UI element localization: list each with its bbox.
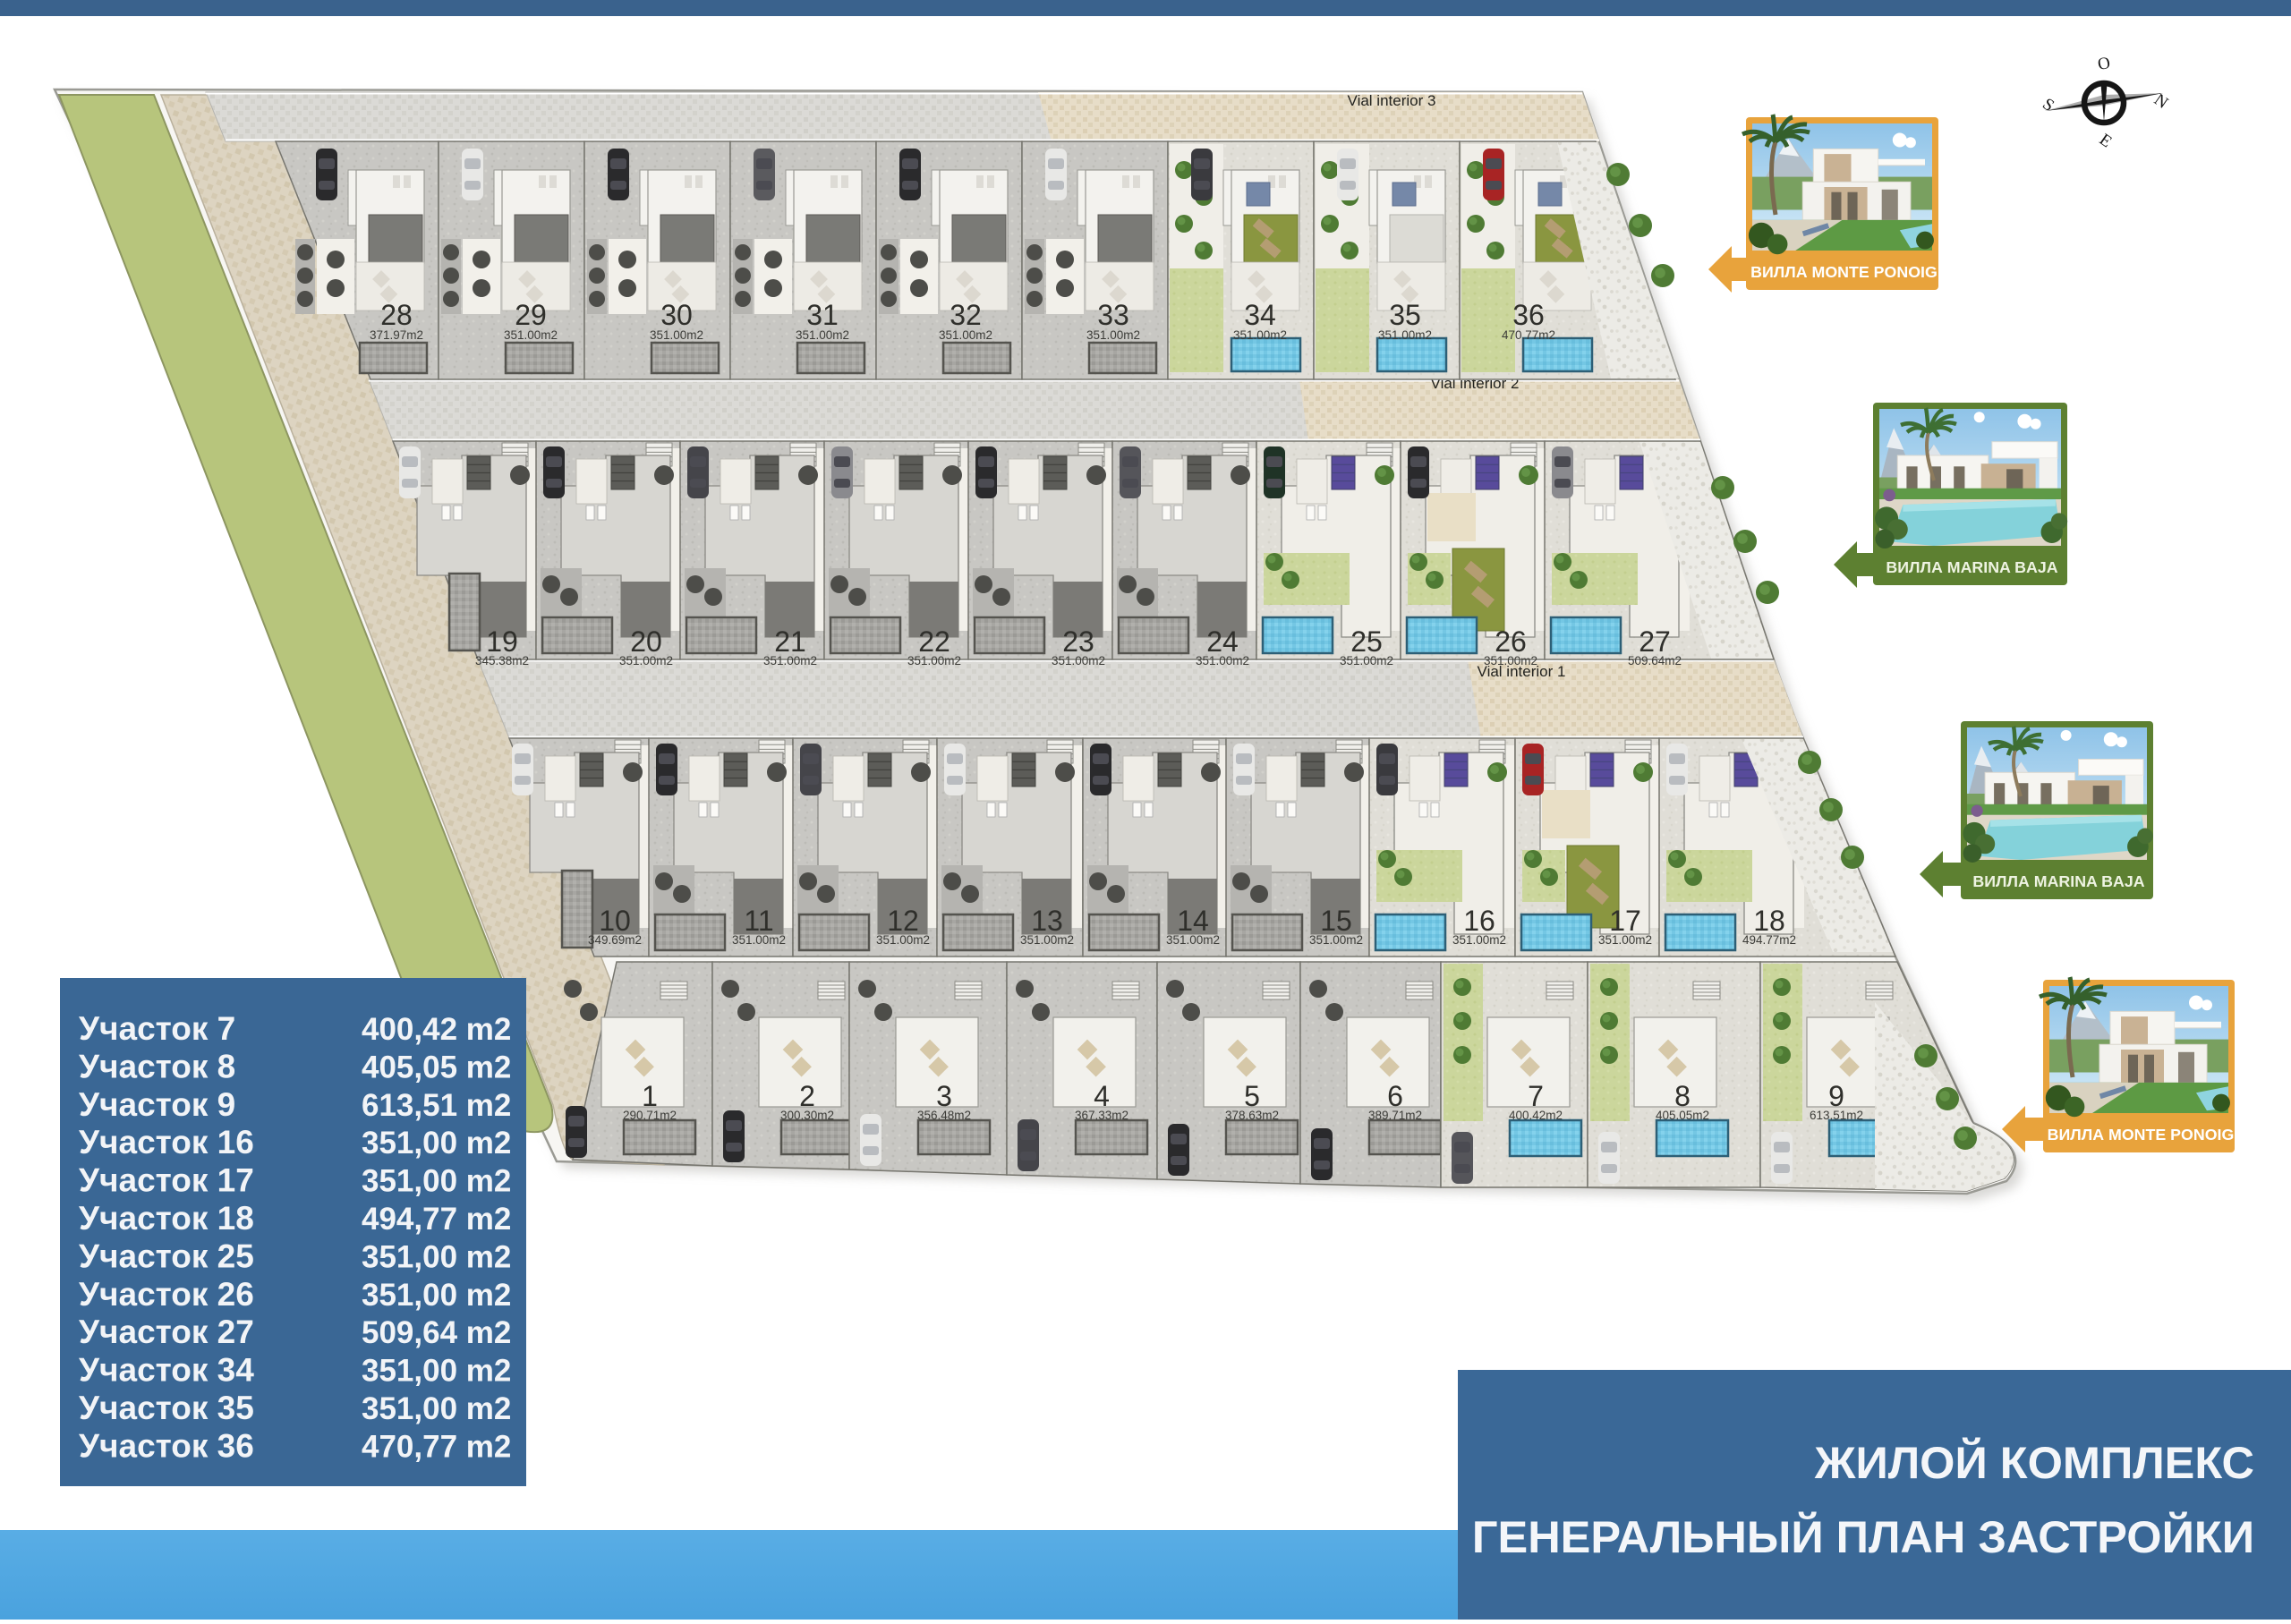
svg-text:3: 3	[936, 1080, 952, 1112]
svg-text:8: 8	[1674, 1080, 1691, 1112]
svg-text:12: 12	[887, 905, 919, 937]
svg-text:13: 13	[1031, 905, 1063, 937]
svg-text:613.51m2: 613.51m2	[1810, 1109, 1863, 1122]
svg-text:400,42 m2: 400,42 m2	[362, 1012, 511, 1047]
svg-text:509.64m2: 509.64m2	[1628, 654, 1682, 667]
svg-text:35: 35	[1389, 299, 1421, 331]
svg-text:24: 24	[1206, 625, 1239, 658]
svg-text:351.00m2: 351.00m2	[1378, 328, 1432, 342]
svg-text:ВИЛЛА MONTE PONOIG: ВИЛЛА MONTE PONOIG	[2048, 1126, 2235, 1144]
svg-text:10: 10	[599, 905, 631, 937]
svg-text:345.38m2: 345.38m2	[475, 654, 529, 667]
svg-text:470.77m2: 470.77m2	[1502, 328, 1555, 342]
svg-text:351.00m2: 351.00m2	[763, 654, 817, 667]
svg-text:20: 20	[630, 625, 662, 658]
svg-text:351.00m2: 351.00m2	[796, 328, 849, 342]
svg-text:ВИЛЛА MONTE PONOIG: ВИЛЛА MONTE PONOIG	[1750, 263, 1938, 281]
svg-text:290.71m2: 290.71m2	[623, 1109, 677, 1122]
svg-text:15: 15	[1320, 905, 1352, 937]
svg-text:19: 19	[486, 625, 518, 658]
svg-text:5: 5	[1244, 1080, 1260, 1112]
svg-text:351.00m2: 351.00m2	[1196, 654, 1249, 667]
svg-text:Участок 18: Участок 18	[79, 1200, 254, 1237]
svg-text:Участок 8: Участок 8	[79, 1048, 235, 1084]
svg-text:18: 18	[1753, 905, 1785, 937]
svg-text:351.00m2: 351.00m2	[907, 654, 961, 667]
svg-text:351.00m2: 351.00m2	[1340, 654, 1393, 667]
svg-text:470,77 m2: 470,77 m2	[362, 1429, 511, 1464]
svg-text:22: 22	[918, 625, 950, 658]
svg-text:405.05m2: 405.05m2	[1656, 1109, 1709, 1122]
svg-text:371.97m2: 371.97m2	[370, 328, 423, 342]
svg-text:1: 1	[642, 1080, 658, 1112]
svg-text:16: 16	[1463, 905, 1495, 937]
svg-text:Vial interior 3: Vial interior 3	[1348, 92, 1436, 109]
svg-text:613,51 m2: 613,51 m2	[362, 1088, 511, 1123]
svg-text:Участок 36: Участок 36	[79, 1427, 254, 1464]
svg-text:351.00m2: 351.00m2	[1020, 933, 1074, 947]
svg-text:351.00m2: 351.00m2	[650, 328, 703, 342]
svg-text:351,00 m2: 351,00 m2	[362, 1164, 511, 1199]
svg-text:351.00m2: 351.00m2	[1484, 654, 1537, 667]
svg-text:23: 23	[1062, 625, 1094, 658]
svg-text:Участок 35: Участок 35	[79, 1390, 254, 1426]
svg-text:400.42m2: 400.42m2	[1509, 1109, 1563, 1122]
svg-text:389.71m2: 389.71m2	[1368, 1109, 1422, 1122]
svg-text:494.77m2: 494.77m2	[1742, 933, 1796, 947]
svg-text:31: 31	[806, 299, 839, 331]
svg-text:Участок 9: Участок 9	[79, 1086, 235, 1123]
svg-text:351.00m2: 351.00m2	[939, 328, 992, 342]
svg-text:351,00 m2: 351,00 m2	[362, 1239, 511, 1274]
svg-text:Участок 26: Участок 26	[79, 1276, 254, 1313]
svg-text:21: 21	[774, 625, 806, 658]
svg-text:351.00m2: 351.00m2	[1052, 654, 1105, 667]
svg-text:356.48m2: 356.48m2	[917, 1109, 971, 1122]
svg-text:351.00m2: 351.00m2	[876, 933, 930, 947]
svg-text:30: 30	[660, 299, 693, 331]
svg-text:14: 14	[1177, 905, 1209, 937]
svg-text:351.00m2: 351.00m2	[1309, 933, 1363, 947]
svg-text:351,00 m2: 351,00 m2	[362, 1126, 511, 1161]
svg-text:2: 2	[799, 1080, 815, 1112]
svg-text:351.00m2: 351.00m2	[1598, 933, 1652, 947]
svg-text:351,00 m2: 351,00 m2	[362, 1278, 511, 1313]
svg-text:349.69m2: 349.69m2	[588, 933, 642, 947]
svg-text:25: 25	[1350, 625, 1383, 658]
svg-text:9: 9	[1828, 1080, 1844, 1112]
svg-text:351.00m2: 351.00m2	[1233, 328, 1287, 342]
svg-text:ЖИЛОЙ КОМПЛЕКС: ЖИЛОЙ КОМПЛЕКС	[1814, 1437, 2254, 1488]
svg-text:33: 33	[1097, 299, 1129, 331]
svg-text:7: 7	[1528, 1080, 1544, 1112]
svg-text:509,64 m2: 509,64 m2	[362, 1315, 511, 1350]
svg-text:11: 11	[744, 905, 773, 937]
svg-text:351.00m2: 351.00m2	[1086, 328, 1140, 342]
svg-text:34: 34	[1244, 299, 1276, 331]
svg-text:405,05 m2: 405,05 m2	[362, 1050, 511, 1084]
svg-text:351,00 m2: 351,00 m2	[362, 1391, 511, 1426]
svg-text:Участок 17: Участок 17	[79, 1162, 254, 1199]
svg-text:494,77 m2: 494,77 m2	[362, 1202, 511, 1237]
svg-text:367.33m2: 367.33m2	[1075, 1109, 1128, 1122]
svg-text:351.00m2: 351.00m2	[619, 654, 673, 667]
svg-text:6: 6	[1387, 1080, 1403, 1112]
svg-text:Участок 7: Участок 7	[79, 1010, 235, 1047]
svg-text:ВИЛЛА MARINA BAJA: ВИЛЛА MARINA BAJA	[1886, 558, 2057, 576]
svg-text:351.00m2: 351.00m2	[504, 328, 558, 342]
svg-text:351.00m2: 351.00m2	[1166, 933, 1220, 947]
svg-text:28: 28	[380, 299, 413, 331]
svg-text:29: 29	[515, 299, 547, 331]
svg-text:27: 27	[1639, 625, 1671, 658]
svg-text:ГЕНЕРАЛЬНЫЙ ПЛАН ЗАСТРОЙКИ: ГЕНЕРАЛЬНЫЙ ПЛАН ЗАСТРОЙКИ	[1472, 1511, 2254, 1562]
svg-text:17: 17	[1609, 905, 1641, 937]
svg-text:351.00m2: 351.00m2	[1452, 933, 1506, 947]
svg-text:Участок 16: Участок 16	[79, 1124, 254, 1161]
svg-text:378.63m2: 378.63m2	[1225, 1109, 1279, 1122]
svg-text:36: 36	[1512, 299, 1545, 331]
svg-text:Участок 27: Участок 27	[79, 1314, 254, 1350]
svg-text:32: 32	[950, 299, 982, 331]
svg-text:351.00m2: 351.00m2	[732, 933, 786, 947]
svg-text:4: 4	[1094, 1080, 1110, 1112]
svg-text:351,00 m2: 351,00 m2	[362, 1354, 511, 1389]
svg-text:ВИЛЛА MARINA BAJA: ВИЛЛА MARINA BAJA	[1972, 872, 2144, 890]
svg-text:26: 26	[1495, 625, 1527, 658]
svg-text:Участок 25: Участок 25	[79, 1237, 254, 1274]
svg-text:300.30m2: 300.30m2	[780, 1109, 834, 1122]
svg-text:Участок 34: Участок 34	[79, 1352, 254, 1389]
